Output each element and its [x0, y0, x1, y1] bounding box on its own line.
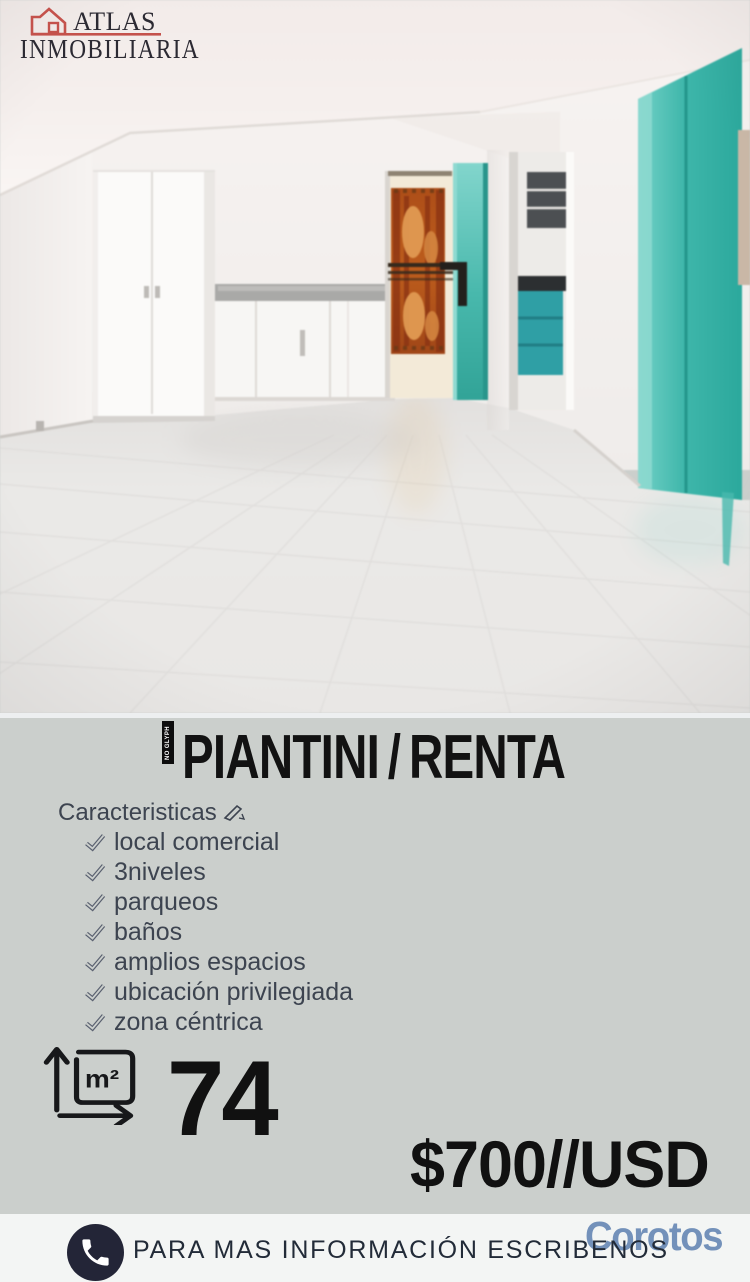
svg-text:ATLAS: ATLAS	[73, 7, 156, 36]
svg-text:m²: m²	[85, 1065, 119, 1093]
